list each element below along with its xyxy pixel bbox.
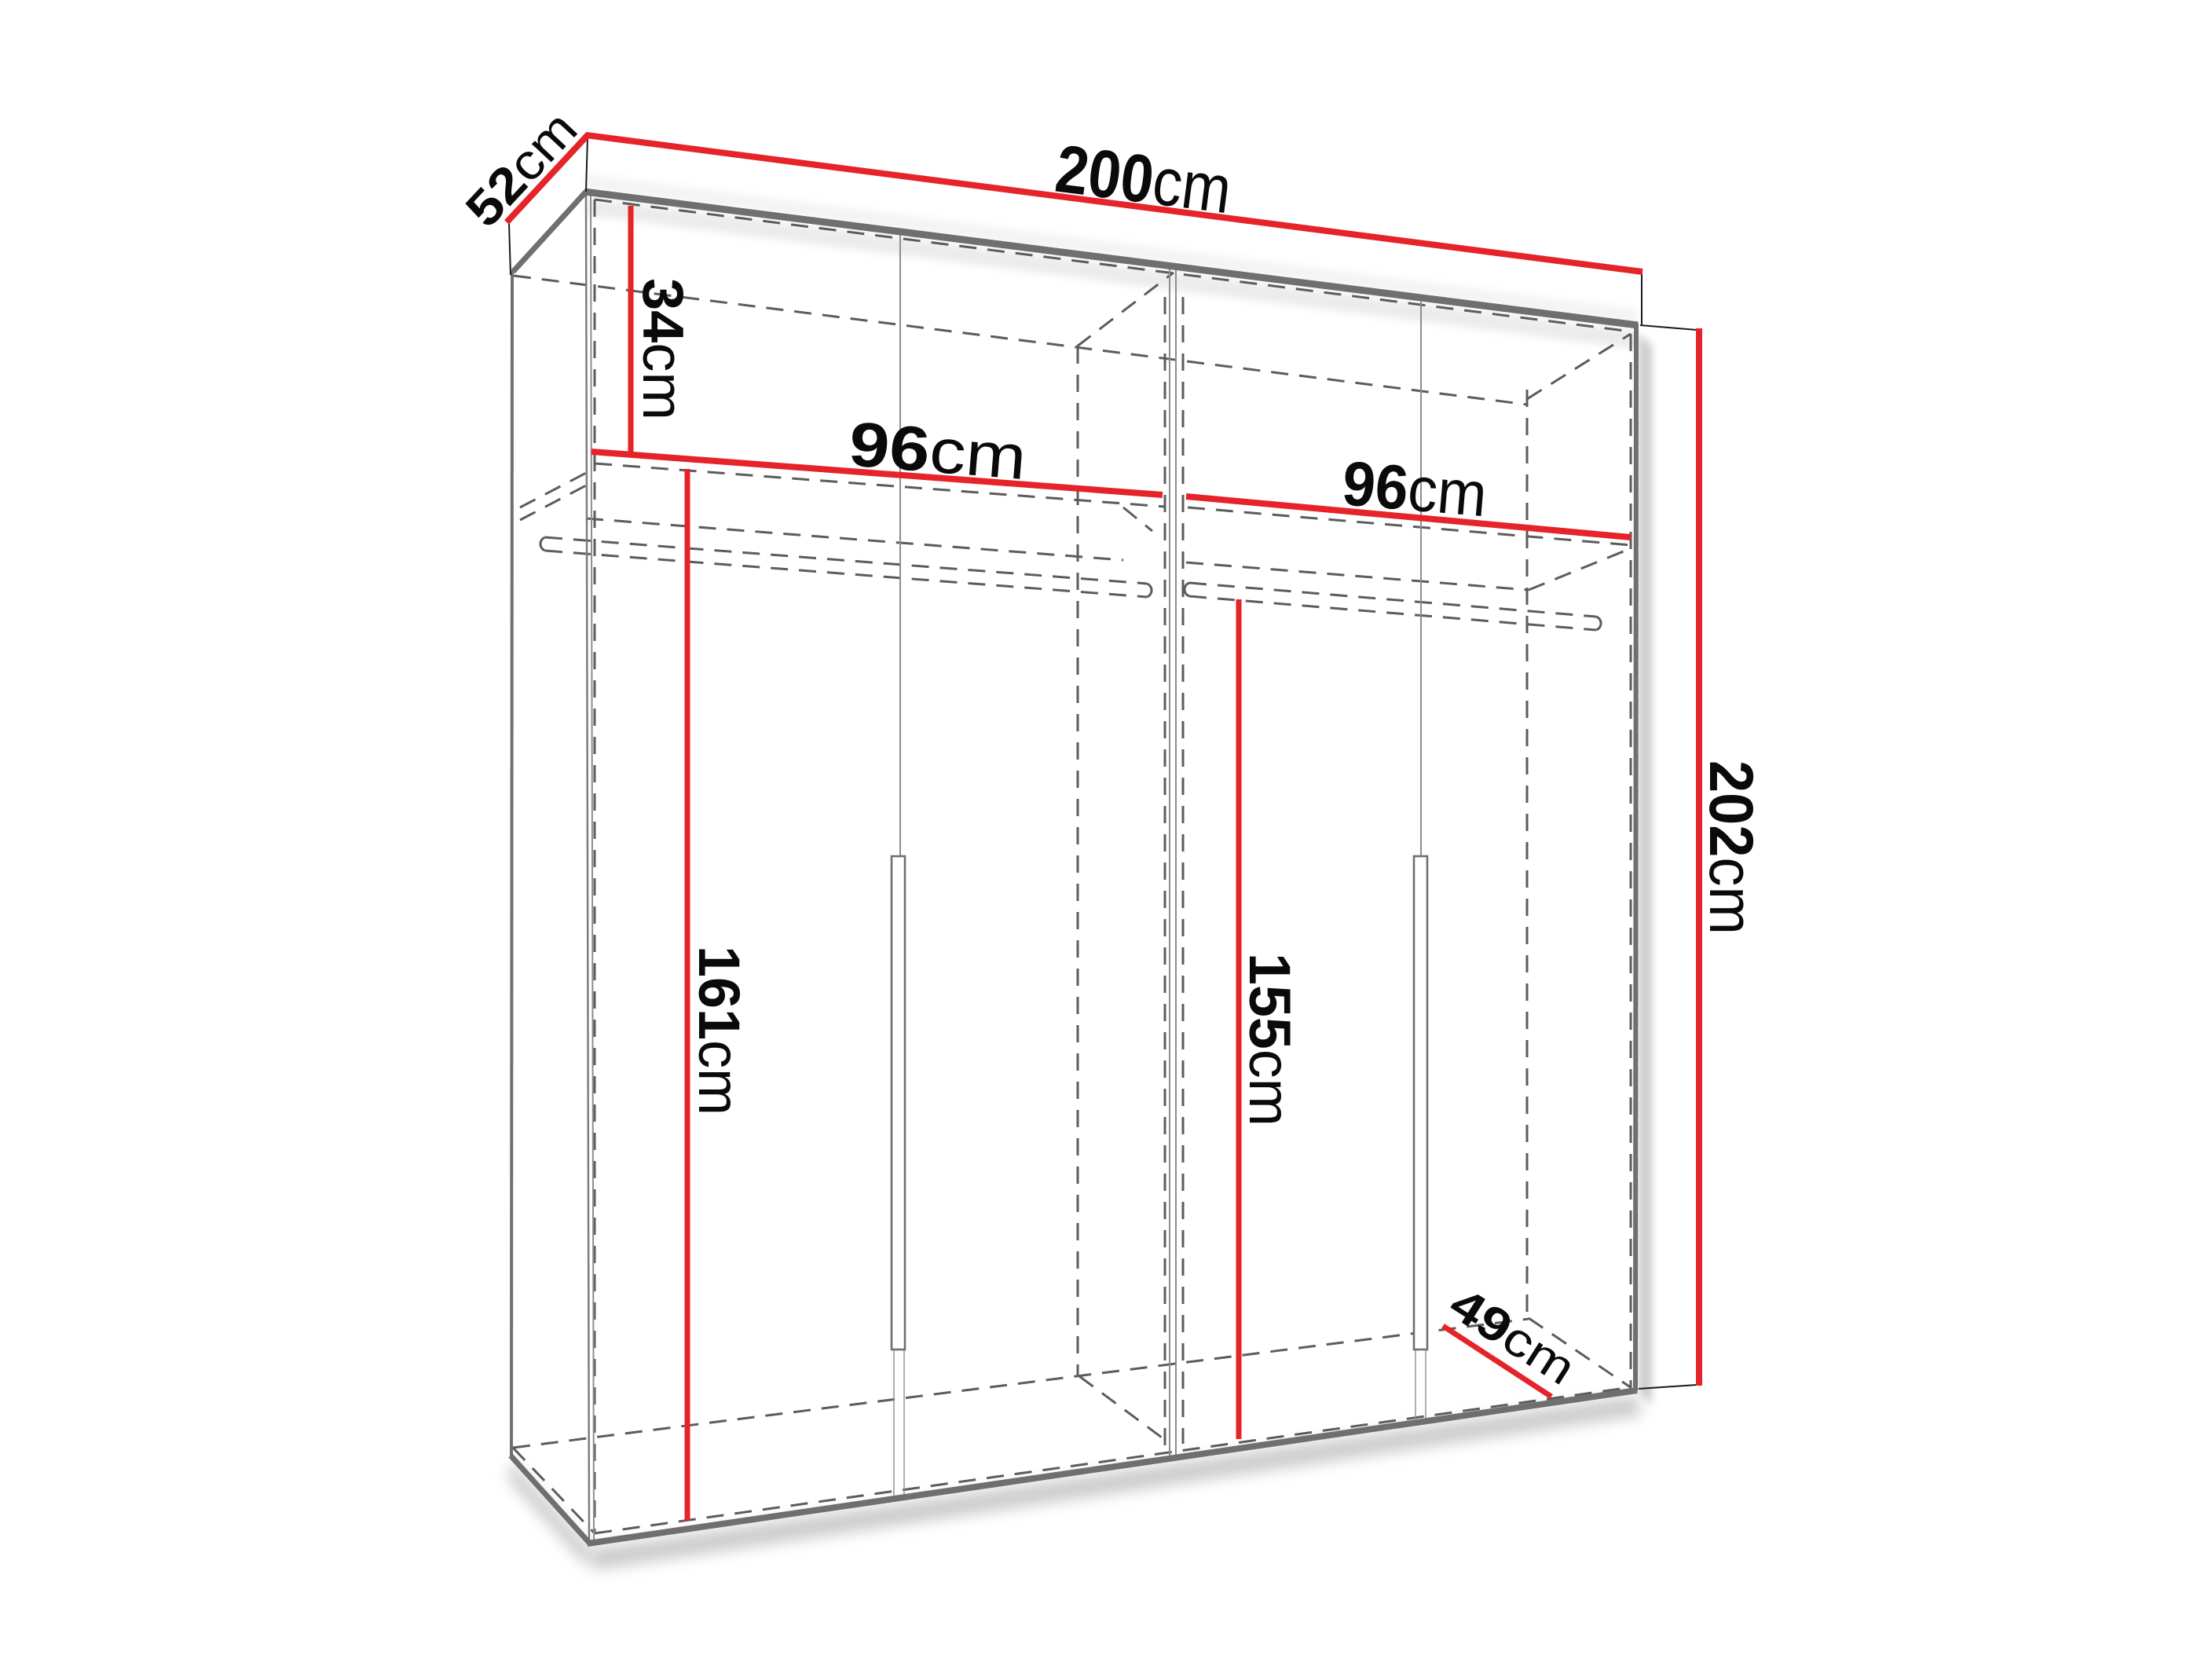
svg-text:96cm: 96cm (847, 408, 1029, 493)
svg-text:202cm: 202cm (1697, 760, 1767, 935)
svg-text:155cm: 155cm (1237, 953, 1302, 1126)
svg-text:34cm: 34cm (631, 278, 694, 420)
svg-text:96cm: 96cm (1340, 448, 1490, 529)
svg-text:161cm: 161cm (687, 946, 752, 1115)
